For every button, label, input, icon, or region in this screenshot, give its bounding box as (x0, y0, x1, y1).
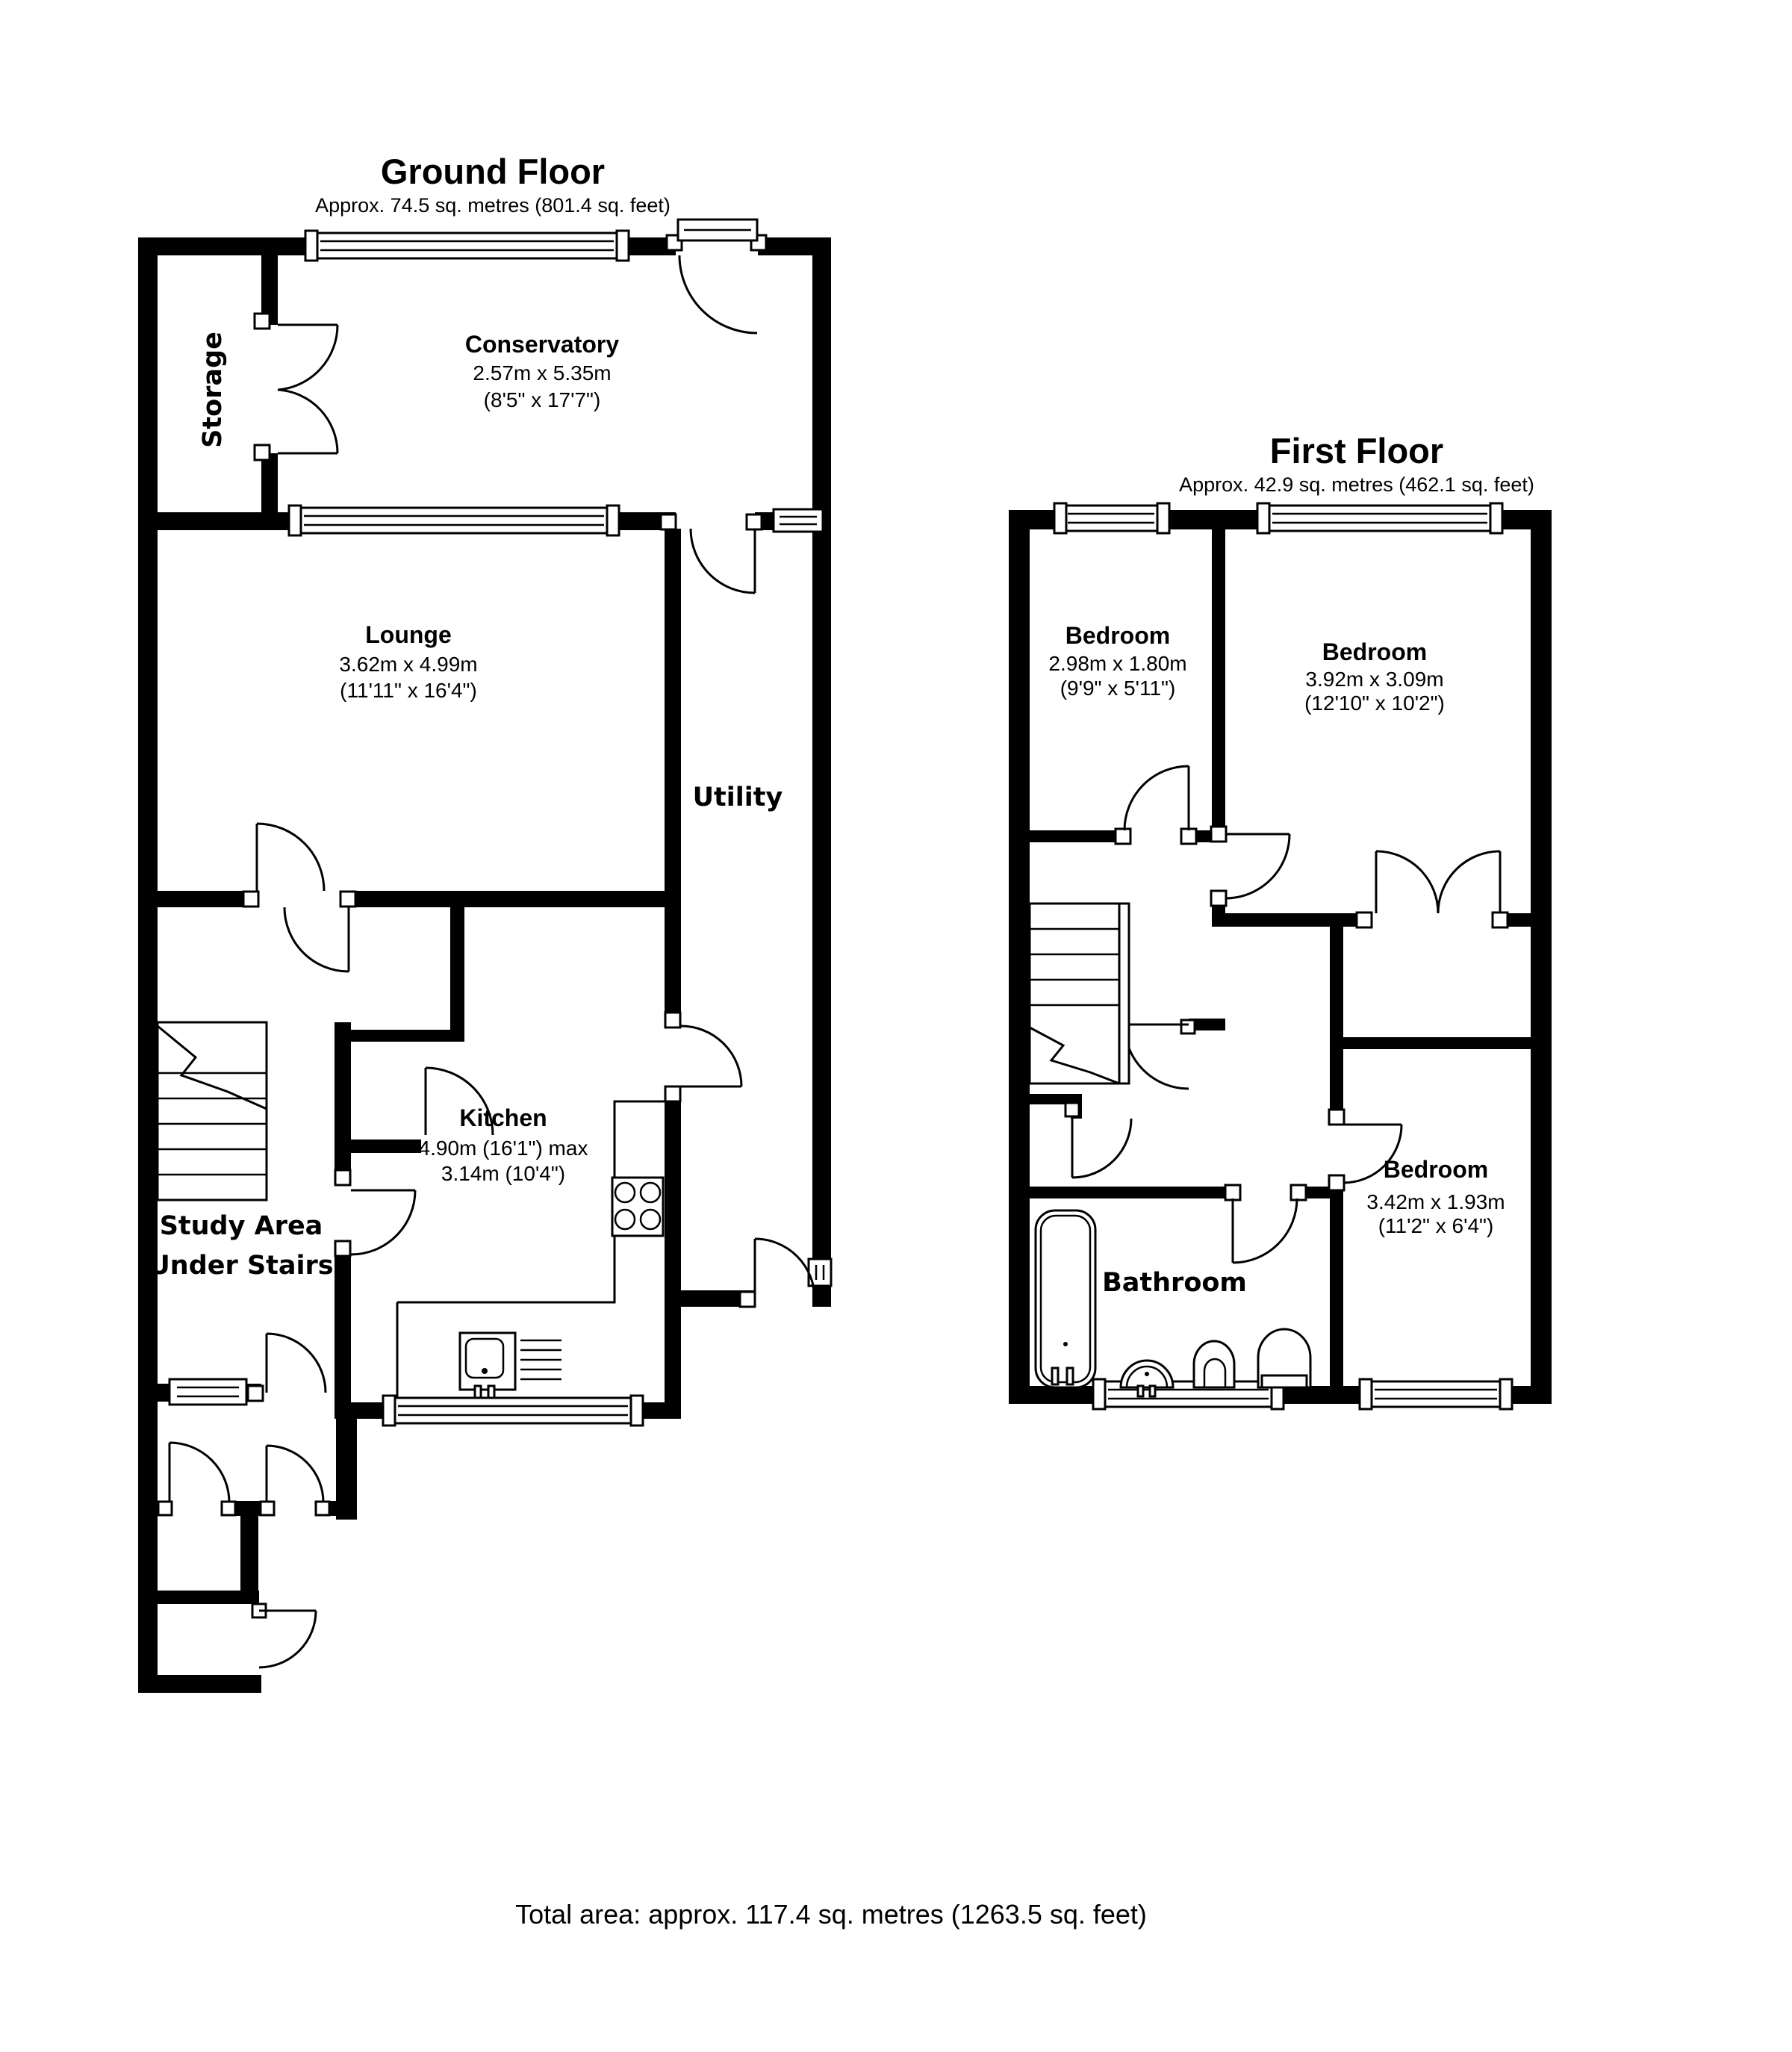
room-bathroom: Bathroom (1102, 1268, 1247, 1298)
room-bedroom-small: Bedroom 2.98m x 1.80m (9'9" x 5'11") (1048, 622, 1186, 700)
total-area-text: Total area: approx. 117.4 sq. metres (12… (515, 1899, 1147, 1930)
toilet-icon (1194, 1341, 1234, 1387)
first-floor-plan: First Floor Approx. 42.9 sq. metres (462… (1009, 431, 1552, 1409)
first-floor-stairs (1030, 904, 1129, 1083)
bedroom-third-dims-m: 3.42m x 1.93m (1366, 1190, 1505, 1213)
room-kitchen: Kitchen 4.90m (16'1") max 3.14m (10'4") (419, 1104, 588, 1185)
ground-floor-plan: Ground Floor Approx. 74.5 sq. metres (80… (138, 152, 831, 1693)
first-floor-title: First Floor (1270, 431, 1443, 470)
extension-door-left (169, 1443, 229, 1502)
first-floor-door-jambs (1065, 827, 1508, 1200)
bedroom-large-window (1257, 503, 1502, 533)
landing-cupboard-door (1072, 1119, 1131, 1178)
conservatory-to-utility-door (691, 529, 755, 593)
bathtub-icon (1036, 1210, 1095, 1387)
divider-small-window (774, 509, 823, 532)
kitchen-wall-stub (349, 1140, 421, 1153)
bedroom-small-label: Bedroom (1065, 622, 1170, 649)
study-area-label-line1: Study Area (160, 1211, 323, 1241)
kitchen-to-utility-door (681, 1026, 741, 1086)
room-bedroom-large: Bedroom 3.92m x 3.09m (12'10" x 10'2") (1304, 638, 1445, 715)
room-bedroom-third: Bedroom 3.42m x 1.93m (11'2" x 6'4") (1366, 1156, 1505, 1237)
bedroom-large-door (1225, 834, 1289, 898)
room-conservatory: Conservatory 2.57m x 5.35m (8'5" x 17'7"… (465, 331, 620, 411)
ground-floor-stairs (158, 1022, 267, 1200)
storage-double-door (278, 325, 337, 453)
lounge-dims-ft: (11'11" x 16'4") (340, 679, 477, 702)
utility-label: Utility (693, 783, 783, 812)
extension-bottom-door (259, 1611, 316, 1667)
study-area-label-line2: Under Stairs (149, 1251, 333, 1281)
conservatory-dims-ft: (8'5" x 17'7") (484, 388, 601, 411)
room-lounge: Lounge 3.62m x 4.99m (11'11" x 16'4") (339, 621, 477, 702)
bedroom-large-dims-m: 3.92m x 3.09m (1305, 668, 1443, 691)
room-utility: Utility (693, 783, 783, 812)
bedroom-large-dims-ft: (12'10" x 10'2") (1304, 691, 1445, 715)
kitchen-dims-line1: 4.90m (16'1") max (419, 1137, 588, 1160)
ground-floor-subtitle: Approx. 74.5 sq. metres (801.4 sq. feet) (315, 194, 671, 217)
conservatory-dims-m: 2.57m x 5.35m (473, 361, 611, 385)
lounge-window (289, 506, 619, 535)
floor-plan-svg: Ground Floor Approx. 74.5 sq. metres (80… (0, 0, 1792, 2052)
kitchen-dims-line2: 3.14m (10'4") (441, 1162, 565, 1185)
bedroom-small-door (1124, 766, 1189, 830)
bedroom-large-label: Bedroom (1322, 638, 1427, 665)
conservatory-window-top (305, 231, 629, 261)
lounge-dims-m: 3.62m x 4.99m (339, 653, 477, 676)
lounge-label: Lounge (365, 621, 452, 648)
extension-door-right (267, 1446, 323, 1502)
bedroom-third-label: Bedroom (1384, 1156, 1488, 1183)
room-study-area: Study Area Under Stairs (149, 1211, 333, 1281)
floorplan-page: { "page": { "background": "#ffffff", "wa… (0, 0, 1792, 2052)
kitchen-label: Kitchen (459, 1104, 547, 1131)
ground-floor-walls (138, 237, 831, 1693)
conservatory-label: Conservatory (465, 331, 620, 358)
lounge-doorway-doors (257, 824, 349, 971)
stove-icon (612, 1178, 663, 1236)
storage-label: Storage (198, 332, 228, 448)
landing-door (1124, 1025, 1189, 1089)
room-storage: Storage (198, 332, 228, 448)
bedroom-small-dims-m: 2.98m x 1.80m (1048, 652, 1186, 675)
study-to-kitchen-door (351, 1190, 415, 1254)
bedroom-small-dims-ft: (9'9" x 5'11") (1060, 677, 1176, 700)
bedroom-small-window (1054, 503, 1169, 533)
sink-icon (460, 1333, 561, 1398)
bedroom-third-window (1360, 1379, 1512, 1409)
kitchen-window (383, 1396, 643, 1425)
study-window (169, 1379, 246, 1405)
wardrobe-double-door (1376, 851, 1500, 913)
bathroom-door (1233, 1198, 1297, 1263)
ground-floor-title: Ground Floor (381, 152, 605, 191)
bedroom-third-dims-ft: (11'2" x 6'4") (1378, 1214, 1494, 1237)
conservatory-entrance-door (678, 220, 757, 333)
first-floor-subtitle: Approx. 42.9 sq. metres (462.1 sq. feet) (1179, 473, 1534, 496)
utility-back-door (755, 1239, 815, 1299)
bathroom-label: Bathroom (1102, 1268, 1247, 1298)
study-passage-door (267, 1334, 326, 1393)
toilet-pedestal-icon (1258, 1329, 1310, 1387)
